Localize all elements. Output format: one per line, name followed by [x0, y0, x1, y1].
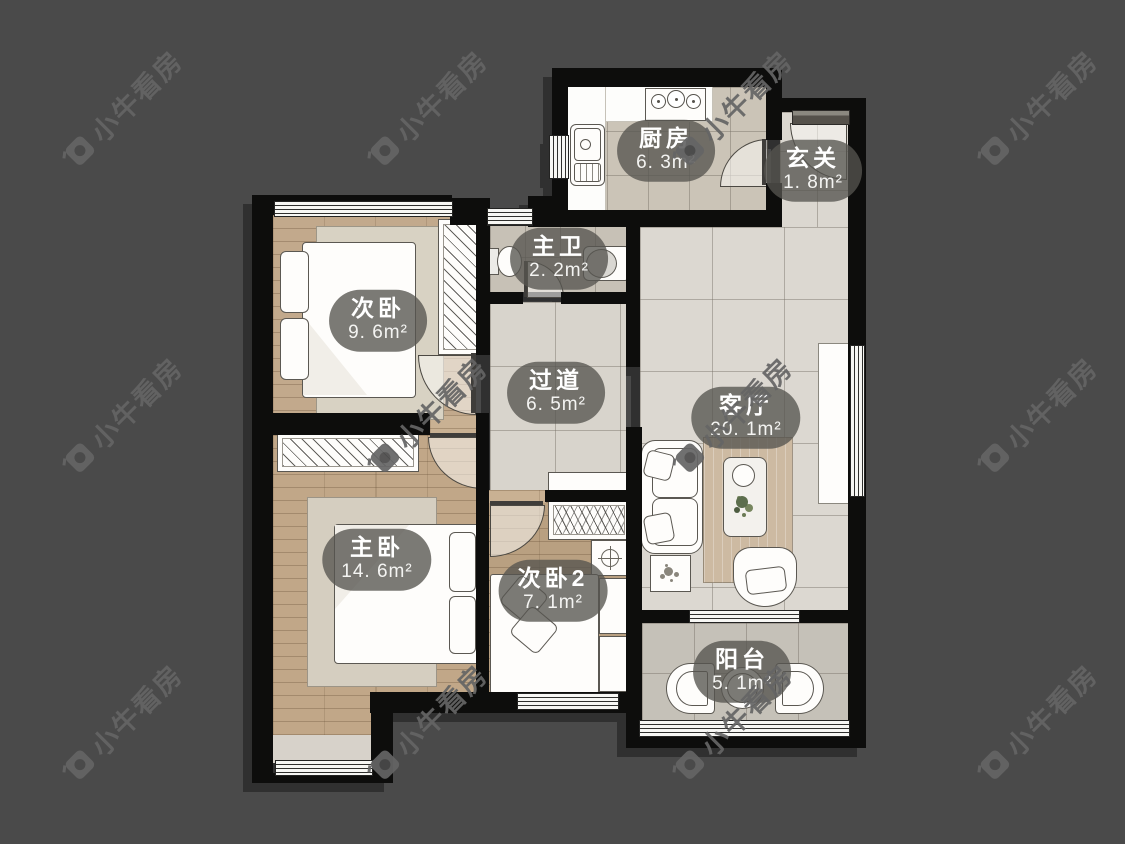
master-pillow-2	[449, 596, 476, 654]
bay-window	[276, 761, 372, 775]
entry-door	[792, 110, 850, 125]
room-area: 2. 2m²	[529, 260, 589, 282]
stove-burner-2	[667, 90, 685, 108]
sofa-pillow-2	[642, 512, 675, 546]
bedroom-3-wardrobe	[548, 500, 630, 540]
bath-right-wall	[626, 220, 640, 367]
vase	[732, 464, 755, 487]
left-outer-wall	[252, 195, 273, 783]
room-label-master-bedroom: 主卧 14. 6m²	[322, 529, 431, 591]
room-name: 玄关	[783, 145, 843, 171]
room-label-entry: 玄关 1. 8m²	[764, 140, 862, 202]
stove-burner-3	[686, 94, 701, 109]
bedroom-2-window	[275, 202, 452, 216]
bay-window-floor	[273, 735, 371, 763]
target-icon	[601, 549, 619, 567]
room-area: 1. 8m²	[783, 172, 843, 194]
kitchen-sink-tap	[580, 139, 591, 150]
master-bath-window	[488, 209, 532, 225]
bedroom-3-window	[518, 694, 618, 709]
bedroom-2-right-wall	[476, 212, 490, 355]
room-area: 6. 5m²	[526, 394, 586, 416]
room-name: 主卫	[529, 233, 589, 259]
master-right-wall	[476, 413, 489, 692]
bedroom-2-pillow-2	[280, 318, 309, 380]
kitchen-bottom-wall	[566, 210, 768, 227]
balcony-sliding-door	[690, 611, 799, 622]
room-area: 7. 1m²	[518, 592, 589, 614]
room-label-master-bath: 主卫 2. 2m²	[510, 228, 608, 290]
master-pillow	[449, 532, 476, 592]
bath-bottom-wall-right	[561, 292, 626, 304]
kitchen-window	[550, 136, 568, 178]
bedroom-3-top-wall	[545, 490, 633, 502]
room-area: 14. 6m²	[341, 561, 412, 583]
stove-burner	[651, 94, 666, 109]
tv-console	[818, 343, 850, 504]
room-label-hallway: 过道 6. 5m²	[507, 362, 605, 424]
room-label-bedroom-3: 次卧2 7. 1m²	[499, 560, 608, 622]
living-room-window	[851, 346, 864, 496]
bedroom-3-door	[490, 501, 543, 505]
master-door	[430, 433, 478, 437]
armchair-pillow	[745, 566, 788, 596]
room-name: 主卧	[341, 534, 412, 560]
bedroom-3-shelf-2	[599, 636, 629, 692]
flower-icon	[664, 567, 673, 576]
room-area: 9. 6m²	[348, 322, 408, 344]
plant-icon	[736, 496, 748, 508]
kitchen-sink-drainer	[574, 163, 601, 182]
room-name: 过道	[526, 367, 586, 393]
room-name: 次卧	[348, 295, 408, 321]
bedroom-2-pillow	[280, 251, 309, 313]
room-name: 次卧2	[518, 565, 589, 591]
room-label-bedroom-2: 次卧 9. 6m²	[329, 290, 427, 352]
floorplan-canvas: 厨房 6. 3m² 玄关 1. 8m² 主卫 2. 2m² 次卧 9. 6m² …	[0, 0, 1125, 844]
